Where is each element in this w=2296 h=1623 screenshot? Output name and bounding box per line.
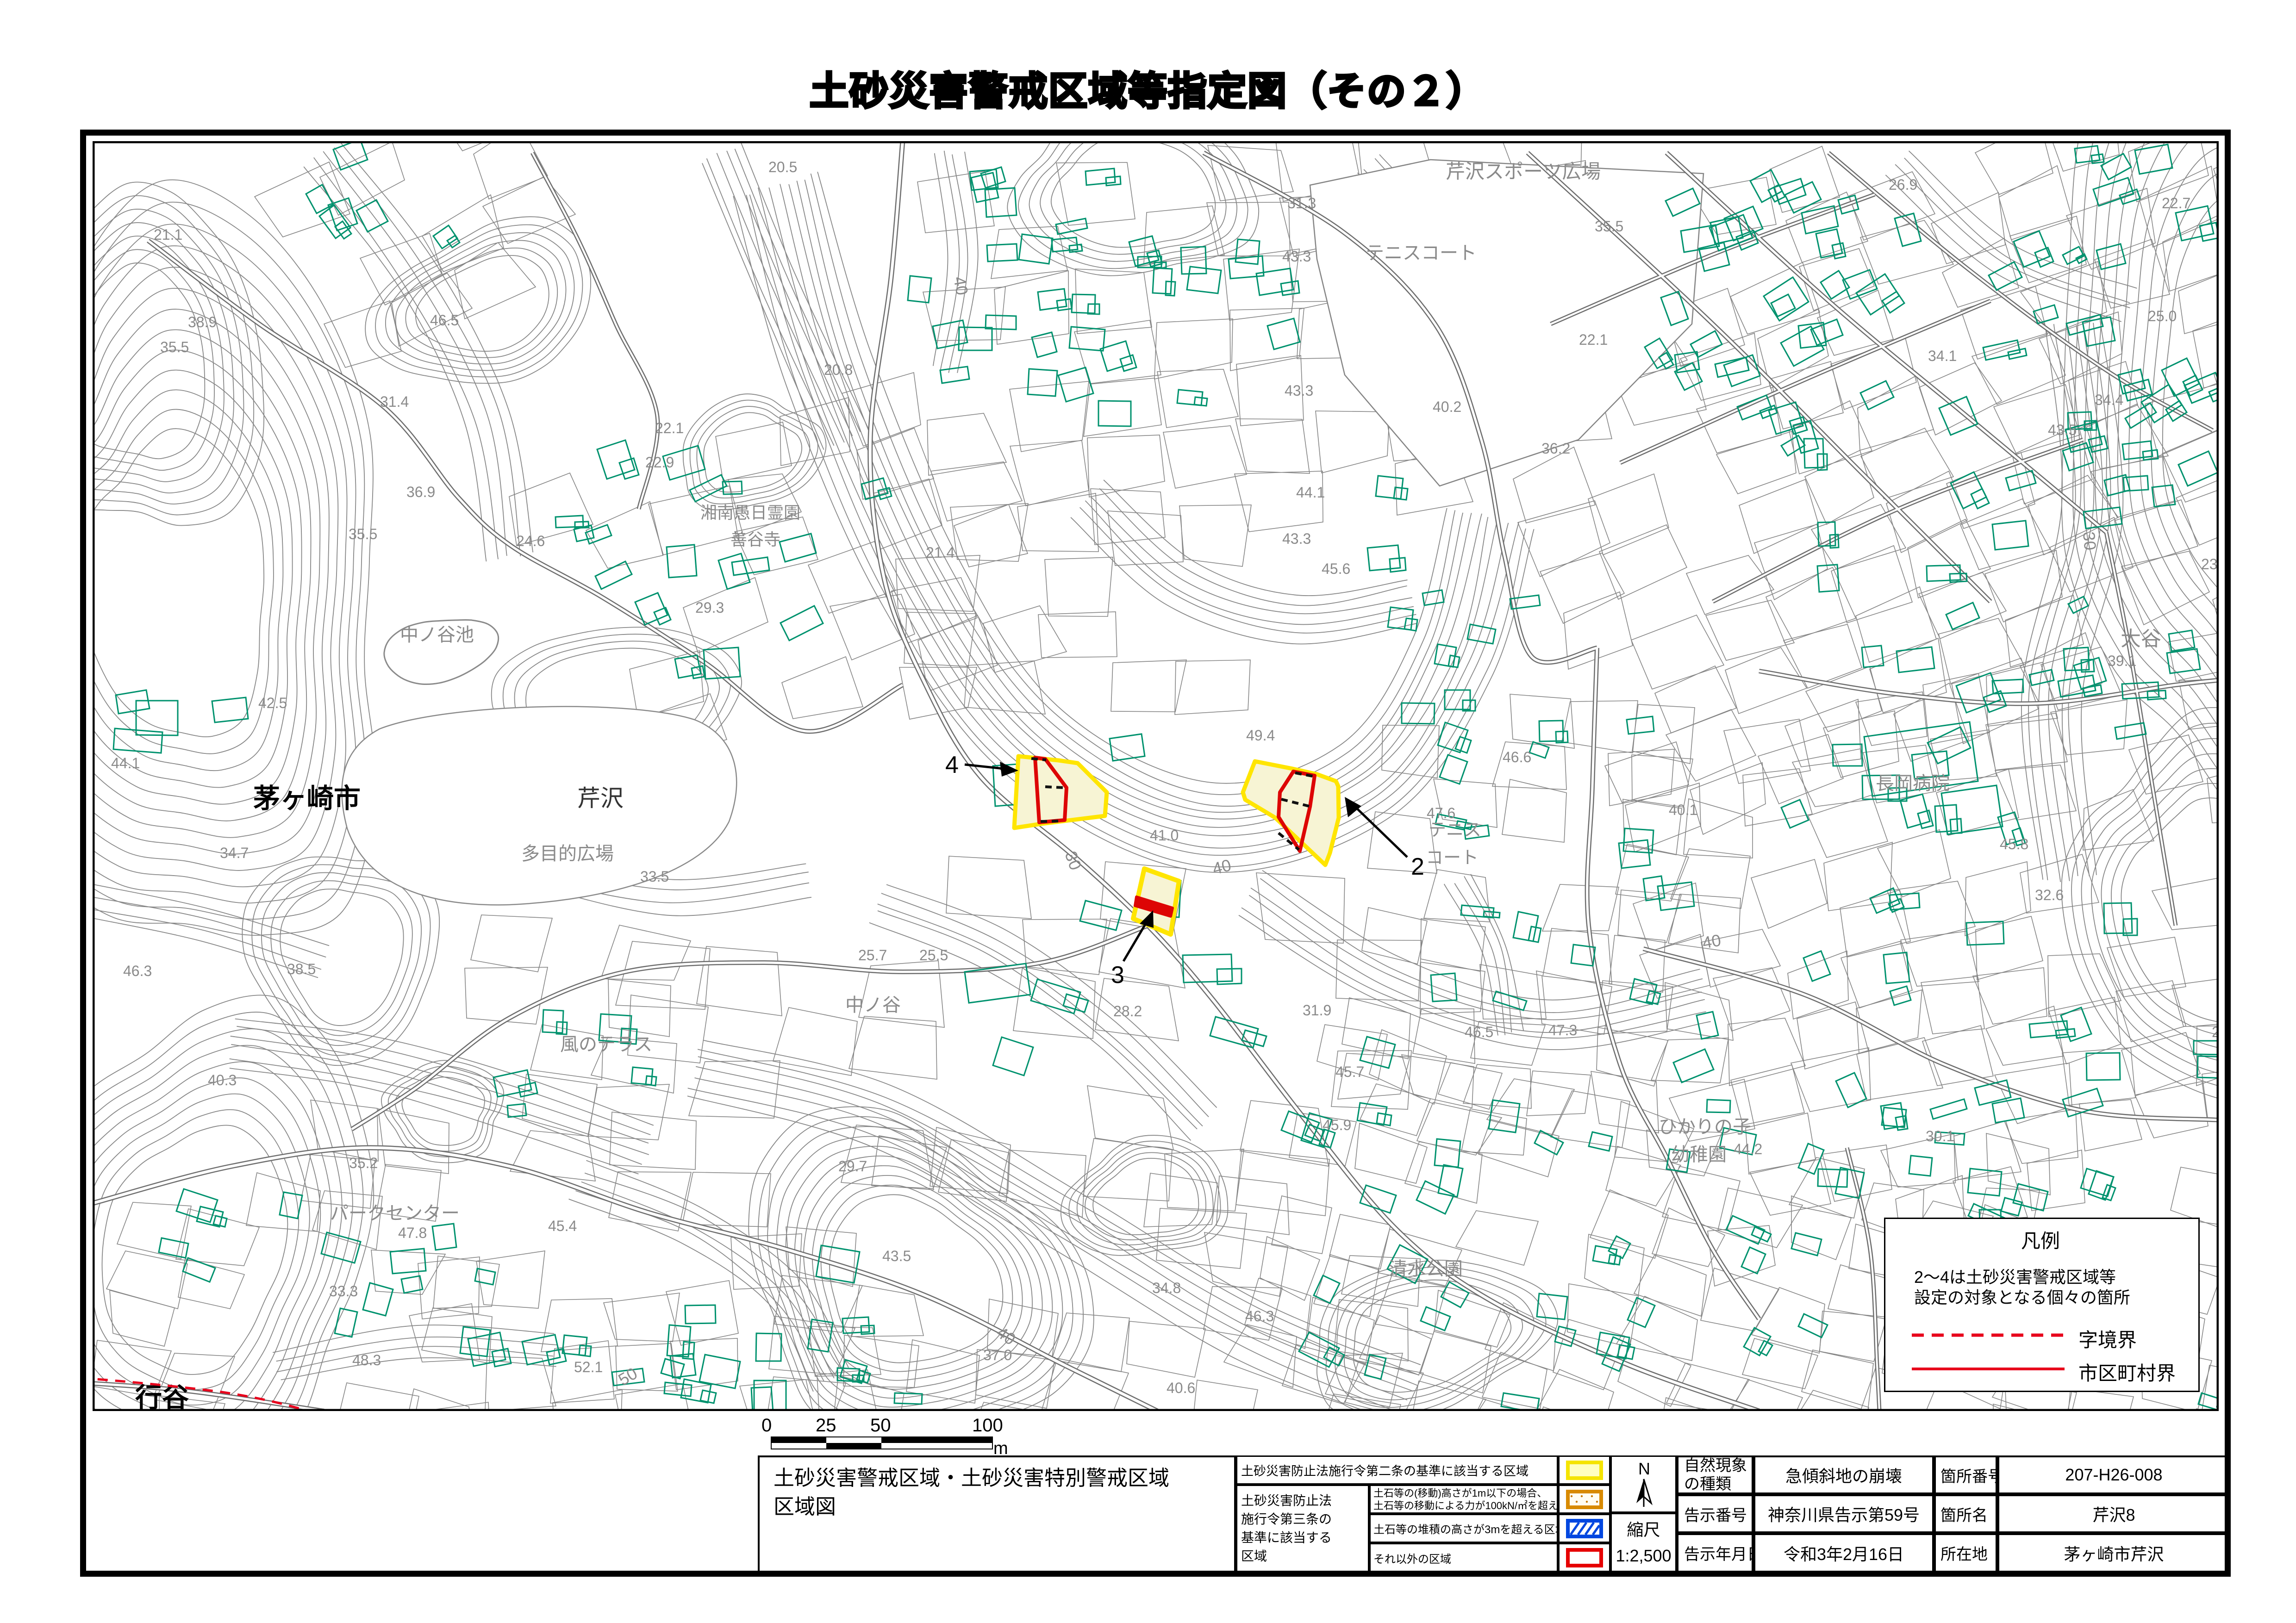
svg-text:44.1: 44.1	[1296, 484, 1325, 501]
svg-text:36.9: 36.9	[406, 484, 435, 500]
svg-text:40.1: 40.1	[1669, 802, 1697, 818]
svg-text:N: N	[1638, 1459, 1650, 1478]
svg-text:47.8: 47.8	[398, 1225, 427, 1241]
svg-text:33.5: 33.5	[640, 868, 669, 885]
svg-text:風のテラス: 風のテラス	[560, 1034, 652, 1055]
svg-text:30: 30	[2079, 531, 2100, 551]
svg-text:35.5: 35.5	[160, 339, 189, 355]
svg-text:48.3: 48.3	[352, 1352, 381, 1368]
svg-text:多目的広場: 多目的広場	[521, 844, 614, 864]
svg-text:テニスコート: テニスコート	[1366, 243, 1477, 263]
svg-text:45.8: 45.8	[2000, 836, 2028, 852]
svg-text:30.1: 30.1	[1926, 1128, 1954, 1144]
svg-text:清水公園: 清水公園	[1389, 1259, 1463, 1279]
svg-text:40.2: 40.2	[1433, 398, 1461, 415]
svg-text:42.5: 42.5	[258, 695, 287, 711]
svg-text:29.3: 29.3	[695, 599, 724, 616]
svg-text:43.5: 43.5	[2048, 422, 2077, 438]
svg-text:43.3: 43.3	[1282, 248, 1311, 265]
svg-text:44.2: 44.2	[1734, 1141, 1762, 1157]
svg-text:湘南愚日霊園: 湘南愚日霊園	[700, 503, 800, 522]
svg-text:テニス: テニス	[1429, 821, 1481, 840]
svg-text:m: m	[993, 1439, 1008, 1456]
svg-text:35.5: 35.5	[1595, 218, 1623, 235]
svg-text:26.9: 26.9	[1889, 176, 1917, 193]
svg-text:22.9: 22.9	[645, 454, 674, 471]
svg-text:32.6: 32.6	[2035, 887, 2064, 903]
svg-text:20.5: 20.5	[768, 159, 797, 175]
svg-text:3: 3	[1111, 962, 1124, 989]
svg-text:23.9: 23.9	[2201, 556, 2219, 572]
svg-text:茅ヶ崎市: 茅ヶ崎市	[253, 784, 361, 814]
svg-text:2: 2	[1411, 853, 1424, 880]
svg-text:29.7: 29.7	[838, 1158, 867, 1175]
svg-text:43.5: 43.5	[882, 1248, 911, 1264]
svg-text:長岡病院: 長岡病院	[1876, 773, 1950, 794]
svg-text:46.5: 46.5	[430, 312, 459, 329]
svg-text:45.9: 45.9	[1323, 1117, 1351, 1133]
svg-text:25.7: 25.7	[858, 947, 887, 964]
svg-text:41.0: 41.0	[1150, 827, 1179, 844]
svg-text:ひかりの子: ひかりの子	[1659, 1117, 1751, 1137]
svg-text:45.4: 45.4	[548, 1218, 577, 1234]
svg-text:24.6: 24.6	[516, 533, 545, 549]
svg-text:45.6: 45.6	[1322, 560, 1350, 577]
svg-text:31.4: 31.4	[380, 393, 409, 410]
svg-text:22.1: 22.1	[1579, 331, 1608, 348]
svg-text:大谷: 大谷	[2121, 628, 2161, 650]
svg-text:36.2: 36.2	[1541, 440, 1570, 457]
svg-text:28.2: 28.2	[1113, 1003, 1142, 1020]
svg-text:35.5: 35.5	[349, 526, 377, 542]
svg-text:46.3: 46.3	[123, 963, 152, 979]
svg-text:40.6: 40.6	[1167, 1380, 1195, 1396]
svg-text:39.1: 39.1	[2108, 653, 2136, 669]
svg-text:中ノ谷池: 中ノ谷池	[400, 625, 474, 645]
svg-text:芹沢スポーツ広場: 芹沢スポーツ広場	[1446, 161, 1601, 182]
svg-text:43.3: 43.3	[1285, 382, 1313, 399]
svg-text:21.1: 21.1	[154, 226, 182, 243]
svg-text:49.4: 49.4	[1246, 727, 1275, 744]
svg-text:46.6: 46.6	[1503, 749, 1531, 765]
svg-text:4: 4	[945, 752, 959, 778]
svg-text:46.3: 46.3	[1245, 1308, 1274, 1325]
svg-text:35.2: 35.2	[349, 1155, 378, 1171]
svg-text:パークセンター: パークセンター	[330, 1203, 460, 1224]
svg-text:25.5: 25.5	[919, 947, 948, 964]
svg-text:芹沢: 芹沢	[577, 785, 624, 811]
svg-text:22.1: 22.1	[655, 420, 684, 436]
svg-text:52.1: 52.1	[574, 1359, 603, 1375]
svg-text:38.9: 38.9	[188, 314, 217, 330]
svg-text:善谷寺: 善谷寺	[730, 530, 780, 549]
svg-text:37.0: 37.0	[983, 1347, 1012, 1363]
svg-text:コート: コート	[1426, 848, 1479, 868]
svg-text:34.1: 34.1	[1928, 348, 1957, 364]
svg-text:25.0: 25.0	[2148, 308, 2177, 324]
svg-text:38.5: 38.5	[287, 961, 316, 977]
svg-text:31.9: 31.9	[1303, 1002, 1331, 1019]
svg-text:43.3: 43.3	[1282, 530, 1311, 547]
svg-text:46.5: 46.5	[1465, 1024, 1493, 1040]
svg-text:20.8: 20.8	[824, 361, 853, 378]
svg-text:幼稚園: 幼稚園	[1671, 1144, 1727, 1165]
svg-text:22.7: 22.7	[2162, 195, 2190, 211]
svg-text:44.1: 44.1	[111, 755, 140, 771]
svg-text:34.4: 34.4	[2095, 392, 2123, 408]
svg-text:40: 40	[950, 275, 972, 297]
svg-text:31.3: 31.3	[1287, 195, 1316, 211]
svg-text:40: 40	[1701, 931, 1722, 952]
svg-text:45.7: 45.7	[1335, 1063, 1364, 1080]
svg-text:行谷: 行谷	[135, 1383, 189, 1411]
svg-text:47.6: 47.6	[1427, 805, 1455, 821]
svg-text:中ノ谷: 中ノ谷	[845, 995, 901, 1015]
svg-text:33.3: 33.3	[329, 1283, 358, 1300]
svg-text:40: 40	[1210, 855, 1233, 878]
svg-text:34.8: 34.8	[1152, 1280, 1181, 1296]
svg-text:34.7: 34.7	[220, 845, 249, 861]
svg-text:47.3: 47.3	[1548, 1022, 1577, 1038]
svg-text:21.4: 21.4	[926, 544, 955, 561]
svg-text:40: 40	[993, 1323, 1019, 1349]
svg-text:40.3: 40.3	[208, 1072, 237, 1088]
svg-text:30: 30	[1061, 849, 1085, 873]
